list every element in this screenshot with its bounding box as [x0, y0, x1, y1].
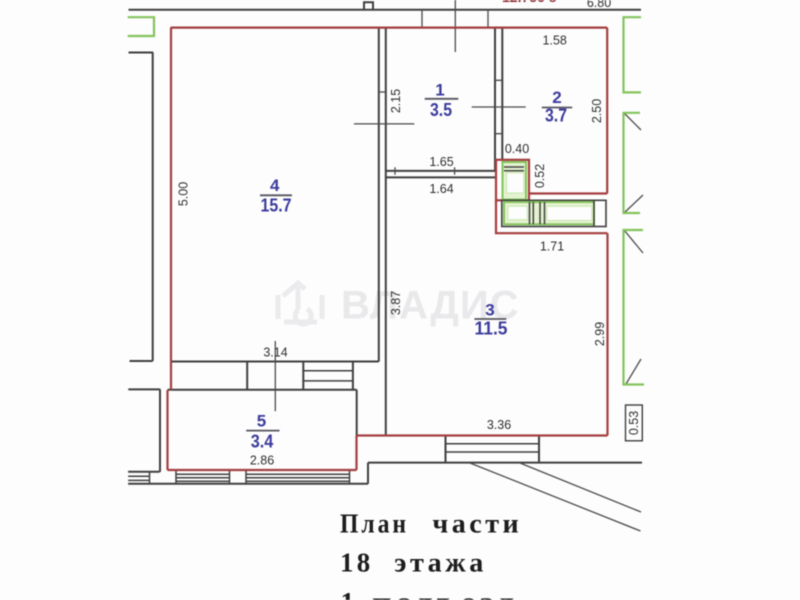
svg-text:1.71: 1.71	[540, 240, 564, 254]
svg-text:1.64: 1.64	[429, 182, 453, 196]
svg-text:2.86: 2.86	[250, 453, 274, 467]
svg-text:4: 4	[270, 176, 280, 195]
svg-text:11.5: 11.5	[475, 318, 508, 338]
svg-text:0.40: 0.40	[505, 142, 529, 156]
svg-text:18этажа: 18этажа	[340, 547, 487, 578]
svg-text:3.36: 3.36	[487, 418, 511, 432]
svg-text:1: 1	[435, 81, 444, 100]
svg-text:3.14: 3.14	[263, 346, 287, 360]
svg-text:3: 3	[485, 300, 494, 319]
svg-text:12.756 8: 12.756 8	[502, 0, 557, 5]
svg-text:3.4: 3.4	[251, 431, 274, 451]
svg-text:5: 5	[257, 412, 266, 431]
svg-text:1.58: 1.58	[543, 34, 567, 48]
svg-text:5.00: 5.00	[177, 182, 191, 206]
svg-text:3.5: 3.5	[430, 100, 452, 120]
svg-text:6.80: 6.80	[587, 0, 611, 10]
svg-text:2.15: 2.15	[389, 89, 403, 113]
svg-text:2: 2	[552, 88, 561, 107]
svg-text:0.53: 0.53	[627, 411, 641, 435]
svg-text:2.99: 2.99	[593, 322, 607, 346]
svg-text:15.7: 15.7	[261, 196, 292, 216]
svg-text:3.87: 3.87	[389, 291, 403, 315]
svg-text:3.7: 3.7	[545, 106, 567, 126]
svg-text:1.65: 1.65	[429, 155, 453, 169]
svg-text:2.50: 2.50	[590, 99, 604, 123]
svg-text:0.52: 0.52	[533, 164, 547, 188]
